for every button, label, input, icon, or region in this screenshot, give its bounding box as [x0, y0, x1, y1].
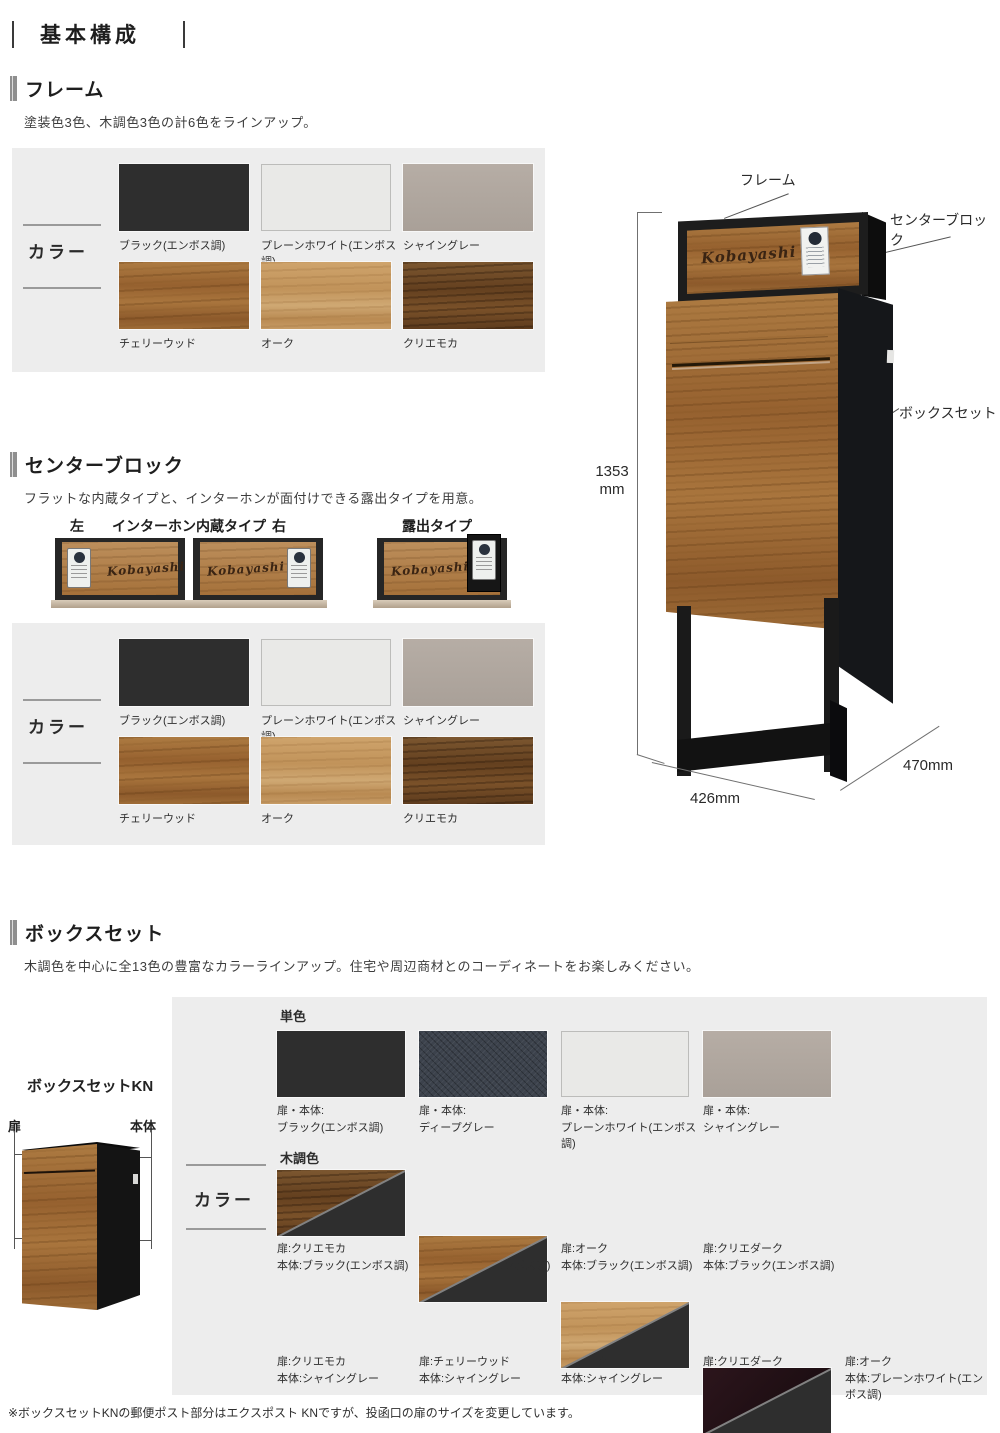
center-swatch-shine-gray: [403, 639, 533, 706]
swatch-color: プレーンホワイト(エンボス調): [561, 1122, 696, 1151]
dim-depth-value: 470mm: [903, 757, 953, 774]
center-block-section-bar: [10, 452, 17, 477]
swatch-target: 扉・本体:: [703, 1105, 750, 1117]
callout-frame: フレーム: [740, 170, 796, 190]
swatch-color: ブラック(エンボス調): [277, 1122, 383, 1134]
box-swatch-label: 扉・本体:プレーンホワイト(エンボス調): [561, 1103, 707, 1153]
interphone-camera-icon: [808, 232, 821, 245]
center-swatch-label: ブラック(エンボス調): [119, 712, 265, 728]
frame-swatch-plain-white: [261, 164, 391, 231]
unit-leg-rear: [830, 700, 847, 782]
swatch-body: 本体:ブラック(エンボス調): [561, 1260, 692, 1272]
dim-height-unit: mm: [590, 481, 634, 498]
dim-height-tick-top: [637, 212, 662, 213]
box-swatch-label: 扉:オーク本体:プレーンホワイト(エンボス調): [845, 1354, 991, 1404]
nameplate-logo: Kobayashi: [700, 243, 796, 268]
figure-base: [373, 600, 511, 608]
color-label-rule-top: [23, 699, 101, 701]
swatch-color: ディープグレー: [419, 1122, 495, 1134]
interphone-icon: [287, 548, 311, 588]
box-swatch-label: 扉:クリエモカ本体:シャイングレー: [277, 1354, 423, 1387]
center-swatch-crie-moka: [403, 737, 533, 804]
swatch-color: シャイングレー: [703, 1122, 780, 1134]
frame-color-label: カラー: [28, 238, 88, 263]
center-swatch-label: オーク: [261, 810, 407, 826]
swatch-door: 扉:クリエダーク: [703, 1356, 783, 1368]
box-swatch-label: 扉:チェリーウッド本体:シャイングレー: [419, 1354, 565, 1387]
body-part-label: 本体: [130, 1116, 156, 1135]
door-bracket-line: [14, 1131, 15, 1249]
catalog-page: 基本構成 フレーム 塗装色3色、木調色3色の計6色をラインアップ。 カラー ブラ…: [0, 0, 1000, 1433]
swatch-body: 本体:ブラック(エンボス調): [703, 1260, 834, 1272]
callout-box-set: ボックスセット: [899, 403, 997, 423]
frame-swatch-oak: [261, 262, 391, 329]
header-left-bar: [12, 21, 14, 48]
unit-illustration: 1353 mm フレーム センターブロック ボックスセット Kobayashi: [590, 160, 1000, 860]
unit-box-front: [666, 293, 838, 633]
box-set-section-bar: [10, 920, 17, 945]
swatch-body: 本体:ブラック(エンボス調): [277, 1260, 408, 1272]
swatch-body: 本体:プレーンホワイト(エンボス調): [845, 1373, 983, 1402]
unit-leg-bottom-bar: [677, 722, 839, 772]
swatch-door: 扉:クリエモカ: [277, 1356, 346, 1368]
frame-swatch-label: シャイングレー: [403, 237, 549, 253]
callout-center-block: センターブロック: [890, 210, 1000, 250]
interphone-icon: [67, 548, 91, 588]
box-swatch-label: 扉:オーク本体:シャイングレー: [561, 1354, 707, 1387]
center-swatch-plain-white: [261, 639, 391, 706]
unit-lock-notch: [887, 350, 894, 363]
swatch-body: 本体:シャイングレー: [561, 1373, 663, 1385]
unit-box-side: [838, 288, 893, 708]
frame-section-subtitle: 塗装色3色、木調色3色の計6色をラインアップ。: [24, 112, 317, 131]
swatch-body: 本体:シャイングレー: [277, 1373, 379, 1385]
center-block-color-label: カラー: [28, 713, 88, 738]
box-set-kn-title: ボックスセットKN: [27, 1075, 153, 1096]
center-block-figure-left: Kobayashi: [55, 538, 185, 600]
frame-section-title: フレーム: [25, 75, 104, 102]
center-block-section-title: センターブロック: [25, 451, 184, 478]
swatch-target: 扉・本体:: [277, 1105, 324, 1117]
footnote: ※ボックスセットKNの郵便ポスト部分はエクスポスト KNですが、投函口の扉のサイ…: [8, 1404, 580, 1421]
frame-swatch-label: チェリーウッド: [119, 335, 265, 351]
type-label-right: 右: [272, 516, 286, 536]
dim-height-line: [637, 212, 638, 755]
exposed-interphone-box: [467, 534, 501, 592]
swatch-door: 扉:オーク: [845, 1356, 892, 1368]
frame-swatch-label: クリエモカ: [403, 335, 549, 351]
box-set-color-label: カラー: [194, 1186, 254, 1211]
color-label-rule-top: [23, 224, 101, 226]
center-swatch-oak: [261, 737, 391, 804]
interphone-grill: [806, 247, 825, 268]
box-swatch-plain-white: [561, 1031, 689, 1097]
color-label-rule-bottom: [23, 762, 101, 764]
box-swatch-label: 扉:クリエモカ本体:ブラック(エンボス調): [277, 1241, 423, 1274]
callout-frame-leader: [724, 193, 789, 219]
center-block-section-subtitle: フラットな内蔵タイプと、インターホンが面付けできる露出タイプを用意。: [24, 488, 482, 507]
swatch-target: 扉・本体:: [419, 1105, 466, 1117]
swatch-door: 扉:クリエモカ: [277, 1243, 346, 1255]
swatch-target: 扉・本体:: [561, 1105, 608, 1117]
color-label-rule-bottom: [23, 287, 101, 289]
frame-section-bar: [10, 76, 17, 101]
center-block-figure-exposed: Kobayashi: [377, 538, 507, 600]
frame-swatch-shine-gray: [403, 164, 533, 231]
box-swatch-label: 扉・本体:ディープグレー: [419, 1103, 565, 1136]
center-block-color-panel: カラー ブラック(エンボス調) プレーンホワイト(エンボス調) シャイングレー …: [12, 623, 545, 845]
box-swatch-label: 扉・本体:シャイングレー: [703, 1103, 849, 1136]
header-right-bar: [183, 21, 185, 48]
box-swatch-black: [277, 1031, 405, 1097]
center-swatch-label: クリエモカ: [403, 810, 549, 826]
unit-nameplate-panel: Kobayashi: [687, 222, 859, 294]
page-title: 基本構成: [40, 19, 140, 49]
box-swatch-criedark-black: [703, 1368, 831, 1433]
type-label-exposed: 露出タイプ: [402, 516, 472, 536]
frame-swatch-crie-moka: [403, 262, 533, 329]
swatch-door: 扉:オーク: [561, 1243, 608, 1255]
dim-height-value: 1353: [590, 463, 634, 480]
box-swatch-moka-black: [277, 1170, 405, 1236]
color-label-rule-top: [186, 1164, 266, 1166]
kn-box-body-side: [97, 1144, 140, 1310]
swatch-body: 本体:シャイングレー: [419, 1373, 521, 1385]
box-swatch-label: 扉:クリエダーク本体:ブラック(エンボス調): [703, 1241, 849, 1274]
frame-swatch-label: ブラック(エンボス調): [119, 237, 265, 253]
box-set-section-subtitle: 木調色を中心に全13色の豊富なカラーラインアップ。住宅や周辺商材とのコーディネー…: [24, 956, 700, 975]
box-swatch-deep-gray: [419, 1031, 547, 1097]
color-label-rule-bottom: [186, 1228, 266, 1230]
type-label-left: 左: [70, 516, 84, 536]
center-swatch-black: [119, 639, 249, 706]
swatch-door: 扉:クリエダーク: [703, 1243, 783, 1255]
body-bracket-line: [151, 1131, 152, 1249]
swatch-door: 扉:チェリーウッド: [419, 1356, 510, 1368]
kn-box-lock: [133, 1174, 138, 1184]
center-swatch-cherry-wood: [119, 737, 249, 804]
dim-width-value: 426mm: [690, 790, 740, 807]
figure-base: [51, 600, 189, 608]
solid-color-group-title: 単色: [280, 1006, 306, 1025]
frame-swatch-cherry-wood: [119, 262, 249, 329]
box-swatch-label: 扉・本体:ブラック(エンボス調): [277, 1103, 423, 1136]
figure-base: [189, 600, 327, 608]
box-swatch-label: 扉:オーク本体:ブラック(エンボス調): [561, 1241, 707, 1274]
type-label-built-in: インターホン内蔵タイプ: [112, 516, 266, 536]
box-set-color-panel: カラー 単色 扉・本体:ブラック(エンボス調) 扉・本体:ディープグレー 扉・本…: [172, 997, 987, 1395]
frame-swatch-label: オーク: [261, 335, 407, 351]
frame-swatch-black: [119, 164, 249, 231]
dim-height-tick-bottom: [637, 754, 665, 764]
wood-color-group-title: 木調色: [280, 1148, 319, 1167]
box-set-section-title: ボックスセット: [25, 919, 164, 946]
center-swatch-label: シャイングレー: [403, 712, 549, 728]
interphone-icon: [472, 540, 496, 580]
frame-color-panel: カラー ブラック(エンボス調) プレーンホワイト(エンボス調) シャイングレー …: [12, 148, 545, 372]
interphone-icon: [800, 227, 830, 276]
box-swatch-shine-gray: [703, 1031, 831, 1097]
center-swatch-label: チェリーウッド: [119, 810, 265, 826]
center-block-figure-right: Kobayashi: [193, 538, 323, 600]
